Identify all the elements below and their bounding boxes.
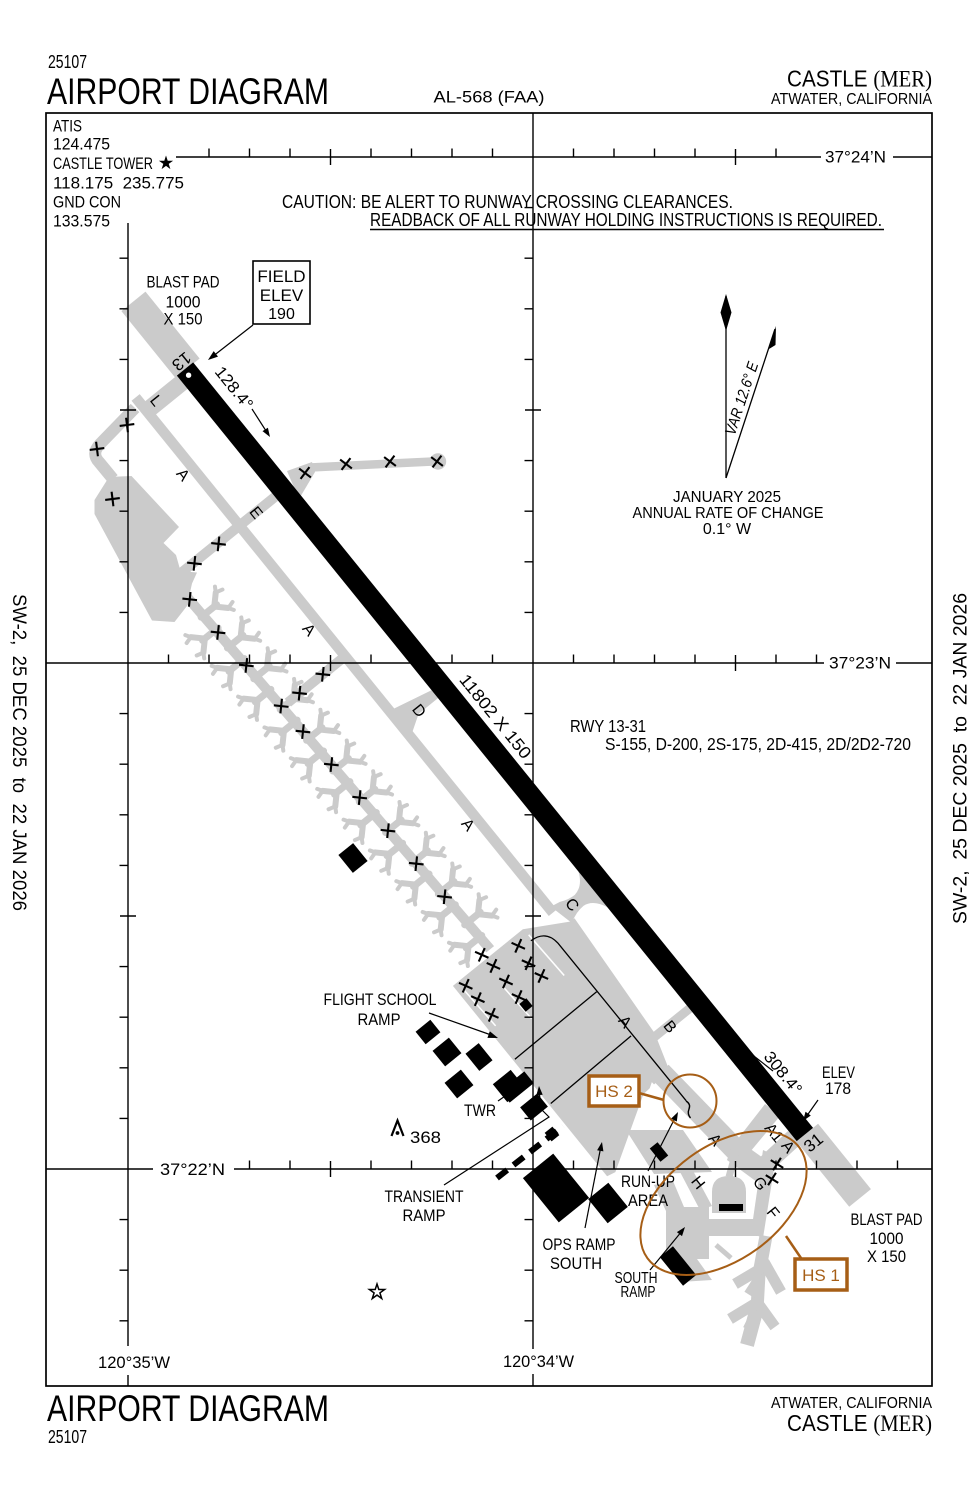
svg-text:X 150: X 150 (164, 310, 203, 329)
svg-text:120°35’W: 120°35’W (98, 1354, 170, 1372)
svg-text:RWY 13-31: RWY 13-31 (570, 716, 646, 736)
svg-text:0.1° W: 0.1° W (703, 521, 752, 538)
svg-text:ATWATER, CALIFORNIA: ATWATER, CALIFORNIA (771, 91, 933, 108)
svg-text:HS 1: HS 1 (802, 1266, 840, 1285)
svg-text:AIRPORT DIAGRAM: AIRPORT DIAGRAM (47, 1387, 329, 1429)
svg-text:118.175 235.775: 118.175 235.775 (53, 174, 184, 193)
svg-text:FIELD: FIELD (257, 267, 305, 286)
svg-text:JANUARY 2025: JANUARY 2025 (673, 489, 781, 506)
svg-text:133.575: 133.575 (53, 212, 110, 231)
svg-text:BLAST PAD: BLAST PAD (851, 1210, 923, 1229)
svg-text:OPS RAMP: OPS RAMP (543, 1236, 616, 1254)
svg-text:178: 178 (825, 1080, 851, 1098)
svg-text:ELEV: ELEV (260, 286, 304, 305)
svg-text:X 150: X 150 (867, 1247, 906, 1266)
svg-text:SOUTH: SOUTH (550, 1255, 602, 1273)
svg-text:S-155, D-200, 2S-175, 2D-415,: S-155, D-200, 2S-175, 2D-415, 2D/2D2-720 (605, 734, 911, 754)
svg-text:RAMP: RAMP (621, 1284, 656, 1301)
svg-text:ANNUAL RATE OF CHANGE: ANNUAL RATE OF CHANGE (633, 505, 824, 522)
svg-text:25107: 25107 (48, 52, 87, 72)
svg-text:RAMP: RAMP (358, 1011, 401, 1029)
svg-text:FLIGHT SCHOOL: FLIGHT SCHOOL (324, 991, 437, 1009)
svg-text:CASTLE (MER): CASTLE (MER) (787, 1410, 932, 1436)
svg-text:368: 368 (410, 1128, 441, 1147)
svg-text:CASTLE TOWER: CASTLE TOWER (53, 154, 153, 173)
svg-text:BLAST PAD: BLAST PAD (147, 273, 220, 292)
svg-text:37°23’N: 37°23’N (829, 654, 891, 673)
svg-text:120°34’W: 120°34’W (503, 1353, 574, 1371)
svg-text:190: 190 (268, 306, 295, 323)
svg-text:TRANSIENT: TRANSIENT (385, 1188, 464, 1206)
svg-text:AIRPORT DIAGRAM: AIRPORT DIAGRAM (47, 70, 329, 112)
svg-text:TWR: TWR (464, 1102, 496, 1120)
svg-text:37°24’N: 37°24’N (825, 148, 886, 167)
svg-text:SW-2, 25 DEC 2025 to 22 JAN: SW-2, 25 DEC 2025 to 22 JAN 2026 (950, 593, 972, 924)
svg-text:RUN-UP: RUN-UP (621, 1173, 675, 1191)
svg-text:ATIS: ATIS (53, 117, 82, 136)
svg-text:124.475: 124.475 (53, 135, 110, 154)
svg-text:1000: 1000 (870, 1229, 904, 1248)
svg-text:HS 2: HS 2 (595, 1082, 633, 1101)
svg-text:37°22’N: 37°22’N (160, 1160, 225, 1179)
svg-text:READBACK OF ALL RUNWAY HOLDING: READBACK OF ALL RUNWAY HOLDING INSTRUCTI… (370, 209, 882, 230)
svg-text:SW-2, 25 DEC 2025 to 22 JAN: SW-2, 25 DEC 2025 to 22 JAN 2026 (8, 594, 30, 911)
svg-text:GND CON: GND CON (53, 193, 121, 212)
svg-text:RAMP: RAMP (403, 1207, 446, 1225)
svg-text:25107: 25107 (48, 1427, 87, 1447)
svg-text:AL-568 (FAA): AL-568 (FAA) (434, 88, 545, 107)
svg-text:CASTLE (MER): CASTLE (MER) (787, 66, 932, 92)
